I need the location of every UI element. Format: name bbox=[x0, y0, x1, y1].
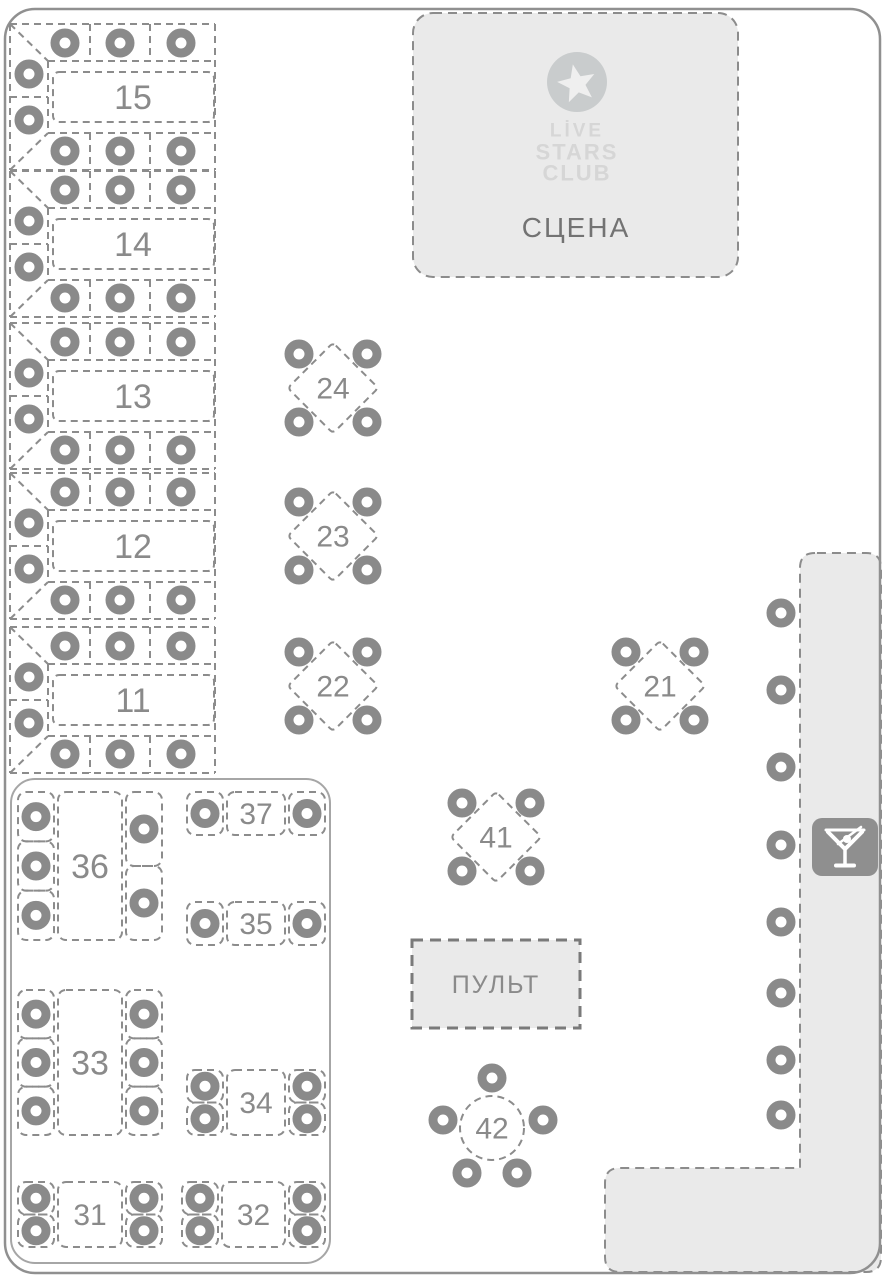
table-15[interactable]: 15 bbox=[10, 24, 215, 170]
table-number: LİVE bbox=[550, 121, 604, 142]
chair bbox=[26, 1053, 46, 1073]
table-number: 21 bbox=[643, 671, 676, 704]
chair bbox=[289, 344, 309, 364]
chair bbox=[289, 560, 309, 580]
table-14[interactable]: 14 bbox=[10, 171, 215, 317]
chair bbox=[195, 1109, 215, 1129]
chair bbox=[26, 1188, 46, 1208]
chair bbox=[190, 1188, 210, 1208]
chair bbox=[771, 983, 791, 1003]
chair bbox=[357, 344, 377, 364]
chair bbox=[297, 914, 317, 934]
chair bbox=[110, 141, 130, 161]
floor-plan-canvas: LİVESTARSCLUBСЦЕНАПУЛЬТ15141312112423222… bbox=[0, 0, 884, 1280]
chair bbox=[289, 642, 309, 662]
chair bbox=[110, 332, 130, 352]
chair bbox=[771, 835, 791, 855]
table-21[interactable]: 21 bbox=[615, 641, 706, 732]
table-41[interactable]: 41 bbox=[451, 792, 542, 883]
chair bbox=[297, 1188, 317, 1208]
chair bbox=[134, 893, 154, 913]
table-34[interactable]: 34 bbox=[187, 1070, 325, 1135]
chair bbox=[289, 492, 309, 512]
table-number: 34 bbox=[239, 1087, 272, 1120]
chair bbox=[110, 288, 130, 308]
chair bbox=[134, 1101, 154, 1121]
chair bbox=[520, 861, 540, 881]
table-37[interactable]: 37 bbox=[187, 792, 325, 835]
chair bbox=[357, 560, 377, 580]
table-number: 13 bbox=[114, 378, 152, 416]
chair bbox=[55, 141, 75, 161]
chair bbox=[190, 1221, 210, 1241]
chair bbox=[134, 1221, 154, 1241]
chair bbox=[520, 793, 540, 813]
chair bbox=[171, 33, 191, 53]
table-22[interactable]: 22 bbox=[288, 641, 379, 732]
martini-glass-icon bbox=[812, 818, 878, 876]
chair bbox=[195, 804, 215, 824]
chair bbox=[19, 257, 39, 277]
table-number: 41 bbox=[479, 822, 512, 855]
chair bbox=[297, 1109, 317, 1129]
chair bbox=[110, 440, 130, 460]
chair bbox=[55, 636, 75, 656]
chair bbox=[26, 1221, 46, 1241]
chair bbox=[55, 180, 75, 200]
chair bbox=[110, 482, 130, 502]
chair bbox=[55, 332, 75, 352]
chair bbox=[19, 713, 39, 733]
table-number: 11 bbox=[115, 682, 150, 720]
chair bbox=[452, 861, 472, 881]
chair bbox=[684, 710, 704, 730]
chair bbox=[433, 1110, 453, 1130]
chair bbox=[19, 363, 39, 383]
chair bbox=[19, 667, 39, 687]
table-33[interactable]: 33 bbox=[18, 990, 162, 1135]
chair bbox=[289, 710, 309, 730]
chair bbox=[171, 482, 191, 502]
chair bbox=[134, 1188, 154, 1208]
chair bbox=[171, 440, 191, 460]
table-13[interactable]: 13 bbox=[10, 323, 215, 469]
chair bbox=[110, 33, 130, 53]
chair bbox=[134, 819, 154, 839]
chair bbox=[19, 211, 39, 231]
chair bbox=[533, 1110, 553, 1130]
table-32[interactable]: 32 bbox=[182, 1182, 325, 1247]
chair bbox=[297, 804, 317, 824]
table-number: 24 bbox=[316, 373, 349, 406]
chair bbox=[616, 642, 636, 662]
chair bbox=[171, 744, 191, 764]
table-42[interactable]: 42 bbox=[433, 1068, 553, 1183]
chair bbox=[110, 590, 130, 610]
table-31[interactable]: 31 bbox=[18, 1182, 162, 1247]
chair bbox=[55, 440, 75, 460]
chair bbox=[26, 1004, 46, 1024]
chair bbox=[110, 180, 130, 200]
chair bbox=[771, 757, 791, 777]
chair bbox=[482, 1068, 502, 1088]
club-floor-plan: LİVESTARSCLUBСЦЕНАПУЛЬТ15141312112423222… bbox=[0, 0, 884, 1280]
stage: LİVESTARSCLUBСЦЕНА bbox=[413, 13, 738, 277]
chair bbox=[19, 559, 39, 579]
bar-stools bbox=[771, 603, 791, 1125]
table-number: 22 bbox=[316, 671, 349, 704]
chair bbox=[19, 513, 39, 533]
table-number: 15 bbox=[114, 79, 152, 117]
chair bbox=[26, 807, 46, 827]
chair bbox=[457, 1163, 477, 1183]
chair bbox=[297, 1076, 317, 1096]
console-label: ПУЛЬТ bbox=[452, 971, 541, 999]
table-number: 33 bbox=[71, 1044, 109, 1082]
chair bbox=[171, 141, 191, 161]
chair bbox=[19, 409, 39, 429]
chair bbox=[171, 332, 191, 352]
chair bbox=[452, 793, 472, 813]
table-number: 14 bbox=[114, 226, 152, 264]
table-number: 31 bbox=[73, 1199, 106, 1232]
chair bbox=[26, 1101, 46, 1121]
table-24[interactable]: 24 bbox=[288, 343, 379, 434]
chair bbox=[771, 912, 791, 932]
chair bbox=[507, 1163, 527, 1183]
chair bbox=[110, 636, 130, 656]
table-number: 35 bbox=[239, 908, 272, 941]
table-number: 36 bbox=[71, 848, 109, 886]
table-35[interactable]: 35 bbox=[187, 902, 325, 945]
table-number: 32 bbox=[237, 1199, 270, 1232]
chair bbox=[616, 710, 636, 730]
chair bbox=[357, 492, 377, 512]
chair bbox=[684, 642, 704, 662]
chair bbox=[134, 1053, 154, 1073]
chair bbox=[771, 1050, 791, 1070]
chair bbox=[55, 288, 75, 308]
chair bbox=[171, 288, 191, 308]
table-12[interactable]: 12 bbox=[10, 473, 215, 619]
chair bbox=[771, 603, 791, 623]
chair bbox=[357, 642, 377, 662]
chair bbox=[55, 33, 75, 53]
chair bbox=[134, 1004, 154, 1024]
table-11[interactable]: 11 bbox=[10, 627, 215, 773]
chair bbox=[171, 590, 191, 610]
sound-console: ПУЛЬТ bbox=[412, 940, 580, 1028]
table-23[interactable]: 23 bbox=[288, 491, 379, 582]
chair bbox=[26, 856, 46, 876]
chair bbox=[357, 412, 377, 432]
table-36[interactable]: 36 bbox=[18, 792, 162, 940]
stage-label: СЦЕНА bbox=[522, 212, 631, 243]
chair bbox=[297, 1221, 317, 1241]
chair bbox=[19, 64, 39, 84]
table-number: 23 bbox=[316, 521, 349, 554]
chair bbox=[171, 636, 191, 656]
chair bbox=[771, 1105, 791, 1125]
chair bbox=[771, 680, 791, 700]
chair bbox=[55, 482, 75, 502]
chair bbox=[357, 710, 377, 730]
chair bbox=[55, 590, 75, 610]
chair bbox=[19, 110, 39, 130]
table-number: 12 bbox=[114, 528, 152, 566]
chair bbox=[289, 412, 309, 432]
table-number: 37 bbox=[239, 798, 272, 831]
chair bbox=[195, 1076, 215, 1096]
chair bbox=[110, 744, 130, 764]
table-number: 42 bbox=[475, 1113, 508, 1146]
chair bbox=[26, 905, 46, 925]
chair bbox=[171, 180, 191, 200]
table-number: CLUB bbox=[542, 161, 611, 186]
chair bbox=[195, 914, 215, 934]
chair bbox=[55, 744, 75, 764]
